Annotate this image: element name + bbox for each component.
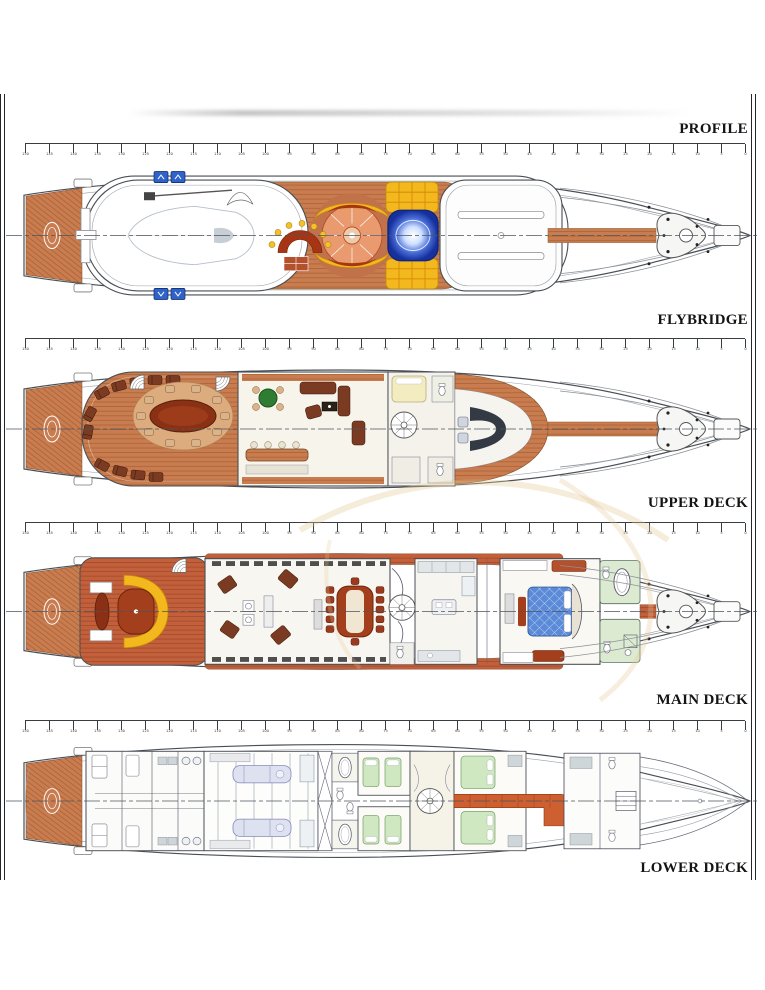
main-deck-plan [0, 545, 765, 678]
scale-ruler-profile: 1501451401351301251201151101051009590858… [25, 143, 745, 159]
helm-seat [458, 433, 468, 443]
sofa [532, 651, 564, 662]
lower-deck-plan [0, 736, 765, 866]
alfresco-dining [133, 382, 233, 450]
sofa [300, 382, 336, 394]
scale-ruler-flybridge: 1501451401351301251201151101051009590858… [25, 338, 745, 354]
engine-port [233, 766, 291, 783]
yacht-deck-plan-page: PROFILE FLYBRIDGE UPPER DECK MAIN DECK L… [0, 0, 765, 990]
galley-island [432, 600, 456, 615]
spiral-staircase [391, 412, 417, 438]
credenza [552, 561, 586, 572]
helm-seat [458, 417, 468, 427]
scale-ruler-upper: 1501451401351301251201151101051009590858… [25, 522, 745, 538]
deck-label-upper-deck: UPPER DECK [648, 495, 748, 512]
deck-label-profile: PROFILE [679, 121, 748, 138]
game-table [259, 389, 277, 407]
scan-artifact-smudge [128, 110, 693, 116]
forepeak-cabins [564, 753, 640, 849]
spiral-staircase [389, 595, 415, 620]
deck-label-main-deck: MAIN DECK [657, 692, 748, 709]
deck-label-flybridge: FLYBRIDGE [657, 312, 748, 329]
engine-starboard [233, 819, 291, 836]
scale-ruler-main: 1501451401351301251201151101051009590858… [25, 720, 745, 736]
upper-deck-plan [0, 361, 765, 497]
flybridge-plan [0, 167, 765, 304]
